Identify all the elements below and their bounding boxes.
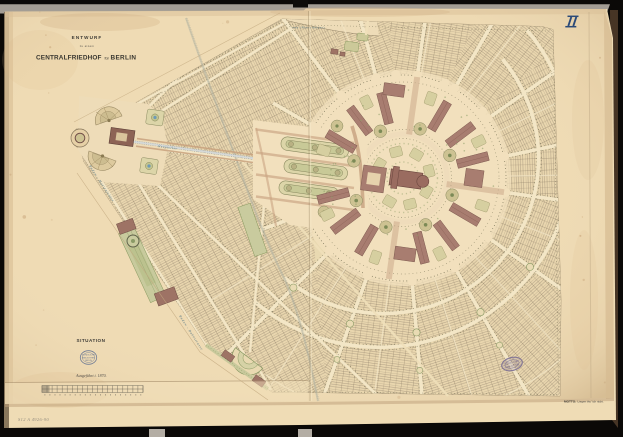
svg-text:CENTRALFRIEDHOF: CENTRALFRIEDHOF	[36, 55, 102, 62]
svg-text:ENTWURF: ENTWURF	[72, 35, 103, 40]
svg-text:Liegen thu' ich nicht.: Liegen thu' ich nicht.	[578, 400, 604, 404]
svg-text:BERLIN: BERLIN	[85, 360, 92, 362]
svg-text:KÖNIGLICHE: KÖNIGLICHE	[82, 354, 95, 357]
svg-text:SITUATION: SITUATION	[77, 338, 107, 343]
svg-text:für: für	[105, 57, 110, 61]
svg-text:Wiese (Rieselfelder): Wiese (Rieselfelder)	[288, 26, 325, 30]
svg-text:MOTTO:: MOTTO:	[564, 400, 576, 404]
svg-text:S12 A 4926-90: S12 A 4926-90	[18, 417, 50, 422]
svg-text:Ausgeführt i. 1870.: Ausgeführt i. 1870.	[75, 373, 107, 378]
svg-text:BERLIN: BERLIN	[111, 55, 137, 62]
svg-text:zu einem: zu einem	[80, 44, 95, 48]
svg-text:BIBLIOTHEK: BIBLIOTHEK	[82, 357, 95, 359]
